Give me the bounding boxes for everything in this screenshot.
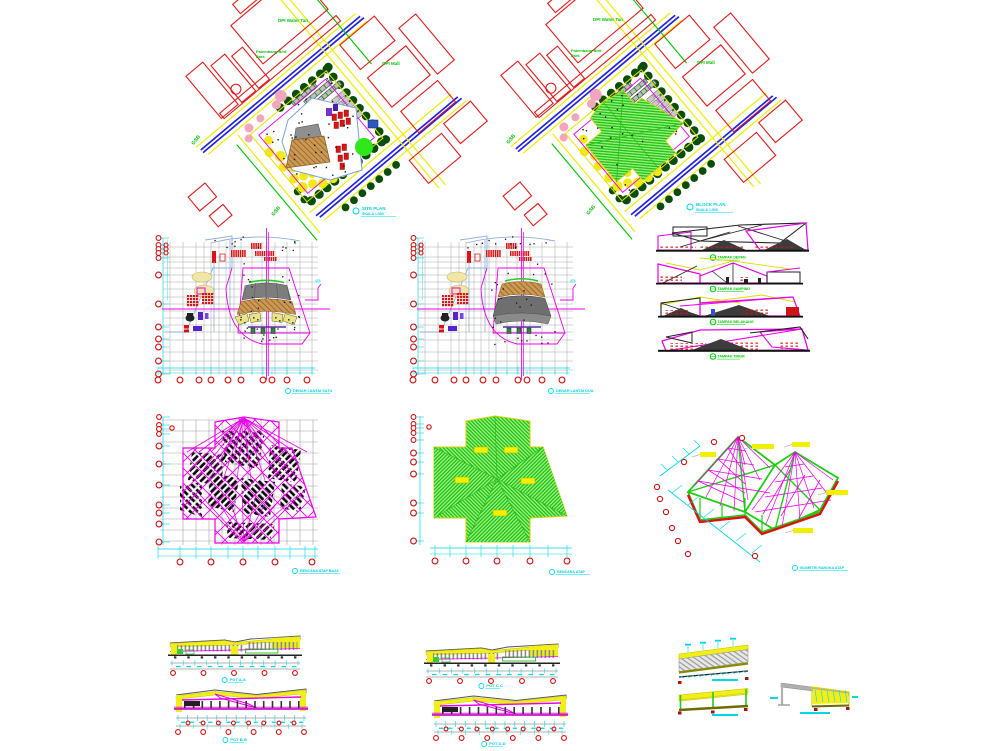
svg-text:Park: Park xyxy=(571,53,580,58)
svg-text:TAMPAK TIMUR: TAMPAK TIMUR xyxy=(718,355,746,359)
svg-text:RENCANA ATAP BAJA: RENCANA ATAP BAJA xyxy=(300,569,339,573)
svg-text:DPI Mall: DPI Mall xyxy=(382,61,400,66)
svg-text:SKALA 1:500: SKALA 1:500 xyxy=(696,208,718,212)
svg-text:POT B-B: POT B-B xyxy=(230,737,247,742)
svg-text:DPI Water Tan: DPI Water Tan xyxy=(278,18,308,23)
svg-text:POT A-A: POT A-A xyxy=(230,677,246,682)
svg-text:TAMPAK SAMPING: TAMPAK SAMPING xyxy=(718,287,751,291)
svg-text:DENAH LANTAI SATU: DENAH LANTAI SATU xyxy=(293,389,333,393)
svg-text:Park: Park xyxy=(256,54,265,59)
svg-text:DPI Mall: DPI Mall xyxy=(697,60,715,65)
svg-text:TAMPAK DEPAN: TAMPAK DEPAN xyxy=(718,256,747,260)
svg-text:BLOCK PLAN: BLOCK PLAN xyxy=(696,202,726,207)
svg-text:POT D-D: POT D-D xyxy=(489,741,506,746)
svg-text:POT C-C: POT C-C xyxy=(486,683,503,688)
svg-text:ISOMETRI RANGKA ATAP: ISOMETRI RANGKA ATAP xyxy=(800,566,845,570)
svg-text:TAMPAK BELAKANG: TAMPAK BELAKANG xyxy=(718,320,754,324)
svg-text:DENAH LANTAI DUA: DENAH LANTAI DUA xyxy=(556,389,594,393)
svg-text:RENCANA ATAP: RENCANA ATAP xyxy=(557,570,586,574)
svg-text:SITE PLAN: SITE PLAN xyxy=(362,206,386,211)
svg-text:SKALA 1:500: SKALA 1:500 xyxy=(362,212,384,216)
svg-text:DPI Water Tan: DPI Water Tan xyxy=(593,17,623,22)
